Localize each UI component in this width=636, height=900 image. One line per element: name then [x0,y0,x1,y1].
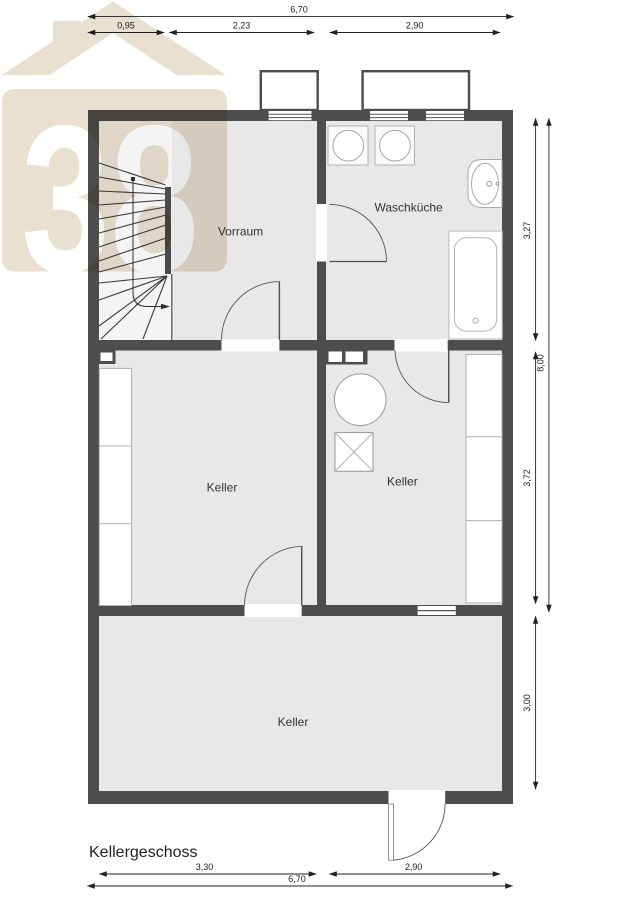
svg-text:8,00: 8,00 [536,354,546,372]
svg-text:3,27: 3,27 [522,222,532,240]
svg-text:3,00: 3,00 [522,694,532,712]
svg-text:Keller: Keller [278,715,309,729]
svg-text:3,72: 3,72 [522,469,532,487]
svg-text:Vorraum: Vorraum [218,225,263,239]
svg-text:6,70: 6,70 [290,5,308,15]
svg-text:Keller: Keller [387,475,418,489]
svg-text:6,70: 6,70 [288,874,306,884]
svg-text:2,90: 2,90 [406,20,424,30]
svg-text:2,90: 2,90 [405,862,423,872]
svg-text:Waschküche: Waschküche [374,201,443,215]
svg-text:0,95: 0,95 [117,20,135,30]
svg-text:Kellergeschoss: Kellergeschoss [89,844,198,861]
svg-text:Keller: Keller [207,481,238,495]
svg-text:2,23: 2,23 [233,20,251,30]
svg-text:3,30: 3,30 [196,862,214,872]
